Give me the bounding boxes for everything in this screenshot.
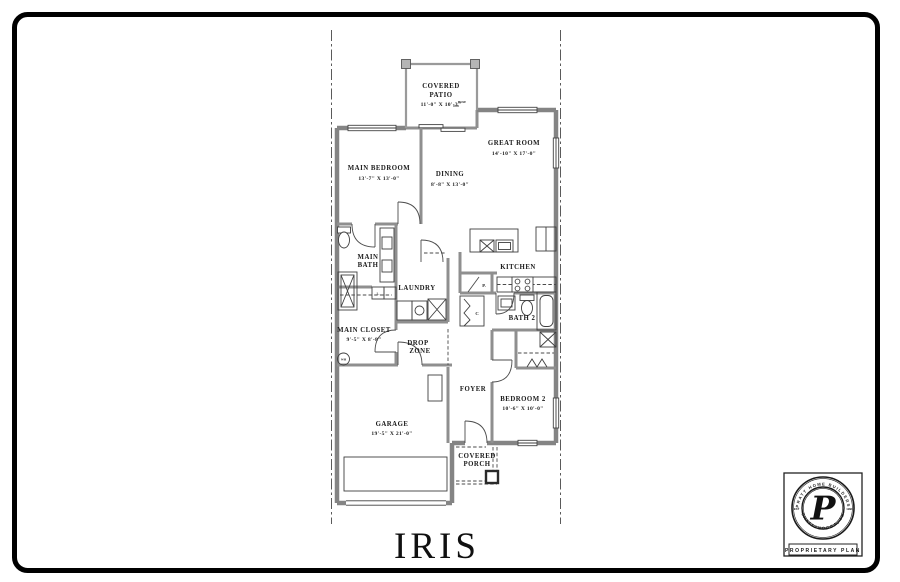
range: [512, 277, 533, 292]
window: [498, 107, 537, 112]
label-hose-bib: HOSE: [458, 100, 466, 104]
window: [553, 138, 558, 168]
page-title: IRIS: [394, 526, 480, 567]
pantry-door: [468, 277, 479, 292]
room-labels: COVERED PATIO 11'-0" X 10'-3" GREAT ROOM…: [337, 83, 546, 468]
label-foyer: FOYER: [460, 386, 486, 393]
patio-post: [402, 60, 411, 69]
builder-stamp: PRATT HOME BUILDERS CHATTANOOGA, TN EST …: [784, 473, 862, 556]
window: [348, 125, 396, 130]
label-bath-2: BATH 2: [509, 315, 536, 322]
bath2-toilet: [520, 295, 534, 316]
coat-closet: [460, 296, 484, 326]
laundry-sink: [428, 299, 446, 320]
window: [518, 440, 537, 445]
sliding-door: [441, 128, 465, 131]
window: [553, 398, 558, 428]
label-main-bath: BATH: [358, 262, 379, 269]
refrigerator: [536, 227, 556, 251]
attic-access: [428, 375, 442, 401]
label-linen: L.: [377, 292, 380, 296]
main-bath-toilet: [338, 227, 351, 248]
floor-plan-sheet: COVERED PATIO 11'-0" X 10'-3" GREAT ROOM…: [0, 0, 900, 582]
porch-column: [486, 471, 498, 483]
linen-cabinets: [372, 287, 396, 299]
label-great-room: GREAT ROOM: [488, 140, 540, 147]
label-drop-zone: ZONE: [409, 348, 430, 355]
dims-main-closet: 9'-5" X 8'-8": [347, 337, 382, 343]
label-covered-patio: PATIO: [429, 92, 452, 99]
main-bath-door: [352, 224, 375, 247]
linen-closet: [540, 332, 556, 347]
stamp-year: 1998: [846, 507, 853, 511]
dims-garage: 19'-5" X 21'-0": [371, 431, 412, 437]
label-covered-porch: PORCH: [463, 461, 490, 468]
label-covered-patio: COVERED: [422, 83, 460, 90]
dims-main-bedroom: 13'-7" X 13'-0": [358, 176, 399, 182]
garage-door: [344, 457, 447, 506]
bedroom2-closet: [518, 353, 554, 367]
label-garage: GARAGE: [376, 421, 409, 428]
bedroom2-door: [492, 360, 512, 382]
label-main-bath: MAIN: [358, 254, 379, 261]
label-pantry: P.: [482, 283, 486, 288]
label-covered-porch: COVERED: [458, 453, 496, 460]
stamp-monogram: P: [810, 489, 837, 528]
sliding-door: [419, 125, 443, 128]
label-water-heater: WH: [341, 358, 347, 362]
washer-dryer: [397, 301, 427, 320]
dims-dining: 8'-8" X 13'-0": [431, 182, 469, 188]
label-bedroom-2: BEDROOM 2: [500, 396, 546, 403]
front-door: [465, 421, 487, 443]
label-coat-closet: C: [475, 311, 478, 316]
patio-post: [471, 60, 480, 69]
page: COVERED PATIO 11'-0" X 10'-3" GREAT ROOM…: [0, 0, 900, 582]
bathtub: [537, 292, 556, 330]
label-laundry: LAUNDRY: [398, 285, 435, 292]
dims-covered-patio: 11'-0" X 10'-3": [421, 102, 462, 108]
stamp-est: EST: [794, 507, 800, 511]
main-bath-vanity: [380, 228, 394, 282]
dims-great-room: 14'-10" X 17'-0": [492, 151, 536, 157]
shower: [338, 272, 357, 310]
main-bedroom-door: [398, 202, 420, 224]
dims-bedroom-2: 10'-6" X 10'-0": [502, 406, 543, 412]
label-drop-zone: DROP: [407, 340, 428, 347]
laundry-door: [421, 240, 443, 262]
label-main-closet: MAIN CLOSET: [337, 327, 391, 334]
label-main-bedroom: MAIN BEDROOM: [348, 165, 411, 172]
label-kitchen: KITCHEN: [500, 264, 536, 271]
proprietary-plate-text: PROPRIETARY PLAN: [785, 548, 861, 554]
label-dining: DINING: [436, 171, 465, 178]
kitchen-island: [470, 229, 518, 252]
